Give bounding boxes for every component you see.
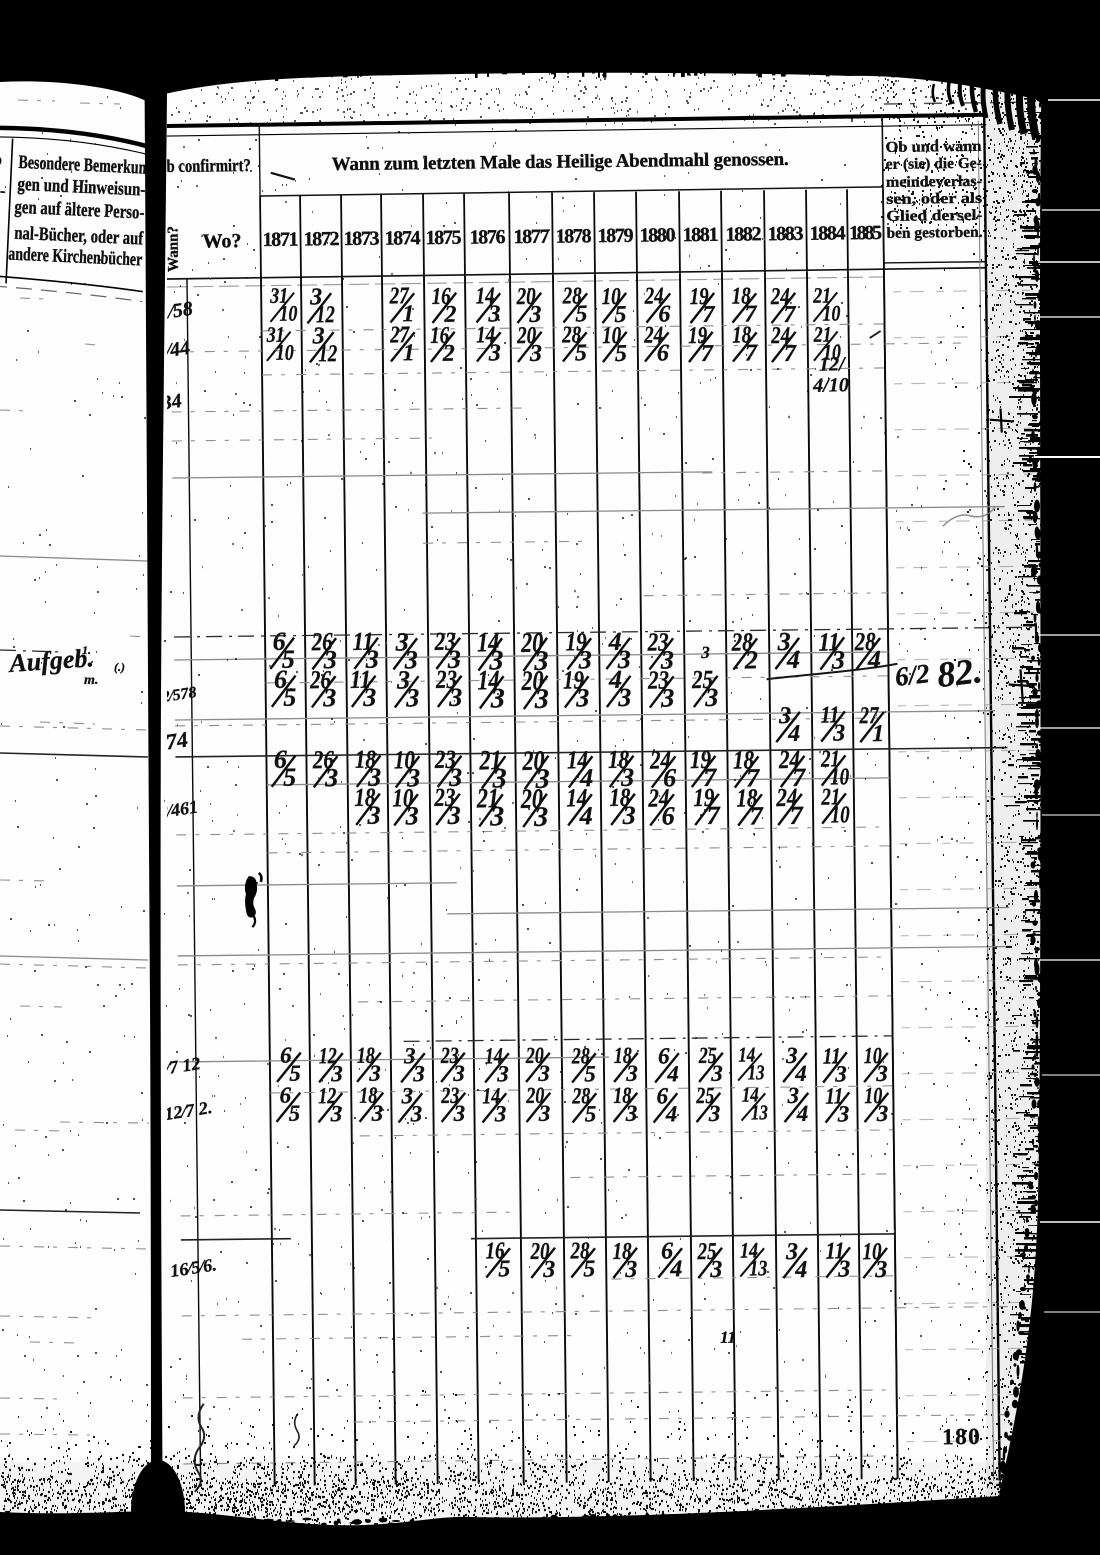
svg-text:3: 3 xyxy=(371,1101,384,1126)
svg-text:3: 3 xyxy=(453,1101,466,1126)
svg-text:82.: 82. xyxy=(935,650,984,695)
svg-text:3: 3 xyxy=(625,1101,638,1126)
svg-text:3: 3 xyxy=(446,801,460,830)
svg-text:4: 4 xyxy=(867,645,881,674)
svg-text:5: 5 xyxy=(283,763,296,792)
svg-text:7: 7 xyxy=(749,801,763,830)
svg-text:3: 3 xyxy=(617,683,631,712)
svg-text:3: 3 xyxy=(490,683,505,714)
svg-text:3: 3 xyxy=(538,1101,551,1126)
svg-text:1872: 1872 xyxy=(303,228,339,250)
svg-text:4/10: 4/10 xyxy=(812,374,849,396)
svg-text:3: 3 xyxy=(322,683,336,712)
svg-text:5: 5 xyxy=(585,1101,597,1126)
svg-text:1875: 1875 xyxy=(425,227,461,249)
svg-text:3: 3 xyxy=(533,802,548,833)
svg-text:4: 4 xyxy=(578,801,592,830)
svg-text:4: 4 xyxy=(786,645,800,674)
svg-text:3: 3 xyxy=(621,801,635,830)
svg-text:4: 4 xyxy=(794,1257,807,1283)
svg-text:13: 13 xyxy=(751,1100,768,1124)
svg-text:4: 4 xyxy=(666,1061,679,1086)
svg-text:5: 5 xyxy=(283,683,296,712)
svg-text:7: 7 xyxy=(706,801,720,830)
svg-text:6/2: 6/2 xyxy=(893,658,931,692)
svg-text:1881: 1881 xyxy=(682,224,718,246)
svg-text:1.: 1. xyxy=(82,643,91,657)
svg-text:3: 3 xyxy=(494,1101,507,1126)
svg-text:1885: 1885 xyxy=(849,222,882,244)
svg-text:’b confirmirt?: ’b confirmirt? xyxy=(162,155,251,176)
svg-text:3: 3 xyxy=(330,1101,343,1126)
svg-text:7: 7 xyxy=(745,340,758,366)
svg-text:10: 10 xyxy=(830,802,849,828)
svg-text:Ob und wann: Ob und wann xyxy=(885,138,982,156)
svg-text:3: 3 xyxy=(709,1257,722,1283)
svg-text:Wann?: Wann? xyxy=(165,226,182,272)
svg-text:7: 7 xyxy=(789,801,803,830)
svg-text:(.): (.) xyxy=(114,660,125,674)
svg-text:1874: 1874 xyxy=(384,227,420,249)
svg-text:3: 3 xyxy=(410,1101,423,1126)
svg-text:1884: 1884 xyxy=(809,222,845,244)
svg-text:6: 6 xyxy=(661,801,674,830)
svg-text:7: 7 xyxy=(784,341,797,367)
svg-text:3: 3 xyxy=(874,1257,887,1283)
svg-text:3: 3 xyxy=(489,801,504,832)
svg-text:3: 3 xyxy=(708,1101,721,1126)
svg-text:3: 3 xyxy=(362,683,376,712)
svg-text:1878: 1878 xyxy=(555,225,591,247)
svg-text:11: 11 xyxy=(720,1328,736,1347)
svg-text:3: 3 xyxy=(542,1257,555,1283)
svg-text:3: 3 xyxy=(837,1101,850,1126)
svg-text:3: 3 xyxy=(876,1101,889,1126)
svg-text:1: 1 xyxy=(872,721,884,747)
svg-text:13: 13 xyxy=(749,1255,767,1280)
svg-text:1871: 1871 xyxy=(262,229,298,251)
svg-text:1876: 1876 xyxy=(469,226,505,248)
svg-text:3: 3 xyxy=(324,763,338,792)
svg-text:3: 3 xyxy=(366,801,380,830)
svg-text:1880: 1880 xyxy=(639,224,675,246)
svg-text:5: 5 xyxy=(498,1256,510,1282)
svg-text:3: 3 xyxy=(837,1256,850,1282)
svg-text:Wo?: Wo? xyxy=(202,230,241,252)
svg-text:5: 5 xyxy=(289,1101,301,1126)
svg-text:5: 5 xyxy=(615,341,627,367)
svg-text:1877: 1877 xyxy=(513,226,549,248)
svg-text:1879: 1879 xyxy=(597,225,633,247)
svg-text:3: 3 xyxy=(704,683,718,712)
svg-text:3: 3 xyxy=(529,341,542,367)
svg-text:5: 5 xyxy=(583,1256,595,1282)
svg-text:4: 4 xyxy=(669,1256,682,1282)
svg-text:12/: 12/ xyxy=(819,353,847,375)
svg-text:7: 7 xyxy=(701,341,714,367)
svg-text:6: 6 xyxy=(657,340,669,366)
svg-text:3: 3 xyxy=(534,684,549,715)
svg-text:10: 10 xyxy=(276,340,294,365)
svg-text:1873: 1873 xyxy=(343,228,379,250)
svg-text:5: 5 xyxy=(575,340,587,366)
svg-text:ben gestorben.: ben gestorben. xyxy=(886,224,982,242)
svg-text:3: 3 xyxy=(575,683,589,712)
svg-text:3: 3 xyxy=(660,683,674,712)
svg-text:2: 2 xyxy=(744,645,758,674)
svg-text:1882: 1882 xyxy=(725,223,761,245)
svg-text:3: 3 xyxy=(624,1257,637,1283)
svg-text:3: 3 xyxy=(404,801,418,830)
svg-text:3: 3 xyxy=(832,720,845,746)
svg-text:1: 1 xyxy=(403,340,415,366)
svg-text:2: 2 xyxy=(442,341,455,367)
svg-text:12: 12 xyxy=(318,341,337,367)
svg-text:3: 3 xyxy=(405,683,419,712)
svg-text:3: 3 xyxy=(488,340,501,366)
svg-text:m.: m. xyxy=(84,673,98,688)
svg-text:3: 3 xyxy=(412,1061,425,1086)
svg-text:3: 3 xyxy=(700,643,710,662)
svg-text:5: 5 xyxy=(289,1061,301,1086)
svg-text:3: 3 xyxy=(448,683,462,712)
svg-text:4: 4 xyxy=(787,721,800,747)
svg-text:4: 4 xyxy=(665,1101,678,1126)
svg-text:4: 4 xyxy=(796,1101,809,1126)
svg-text:13: 13 xyxy=(747,1060,764,1084)
